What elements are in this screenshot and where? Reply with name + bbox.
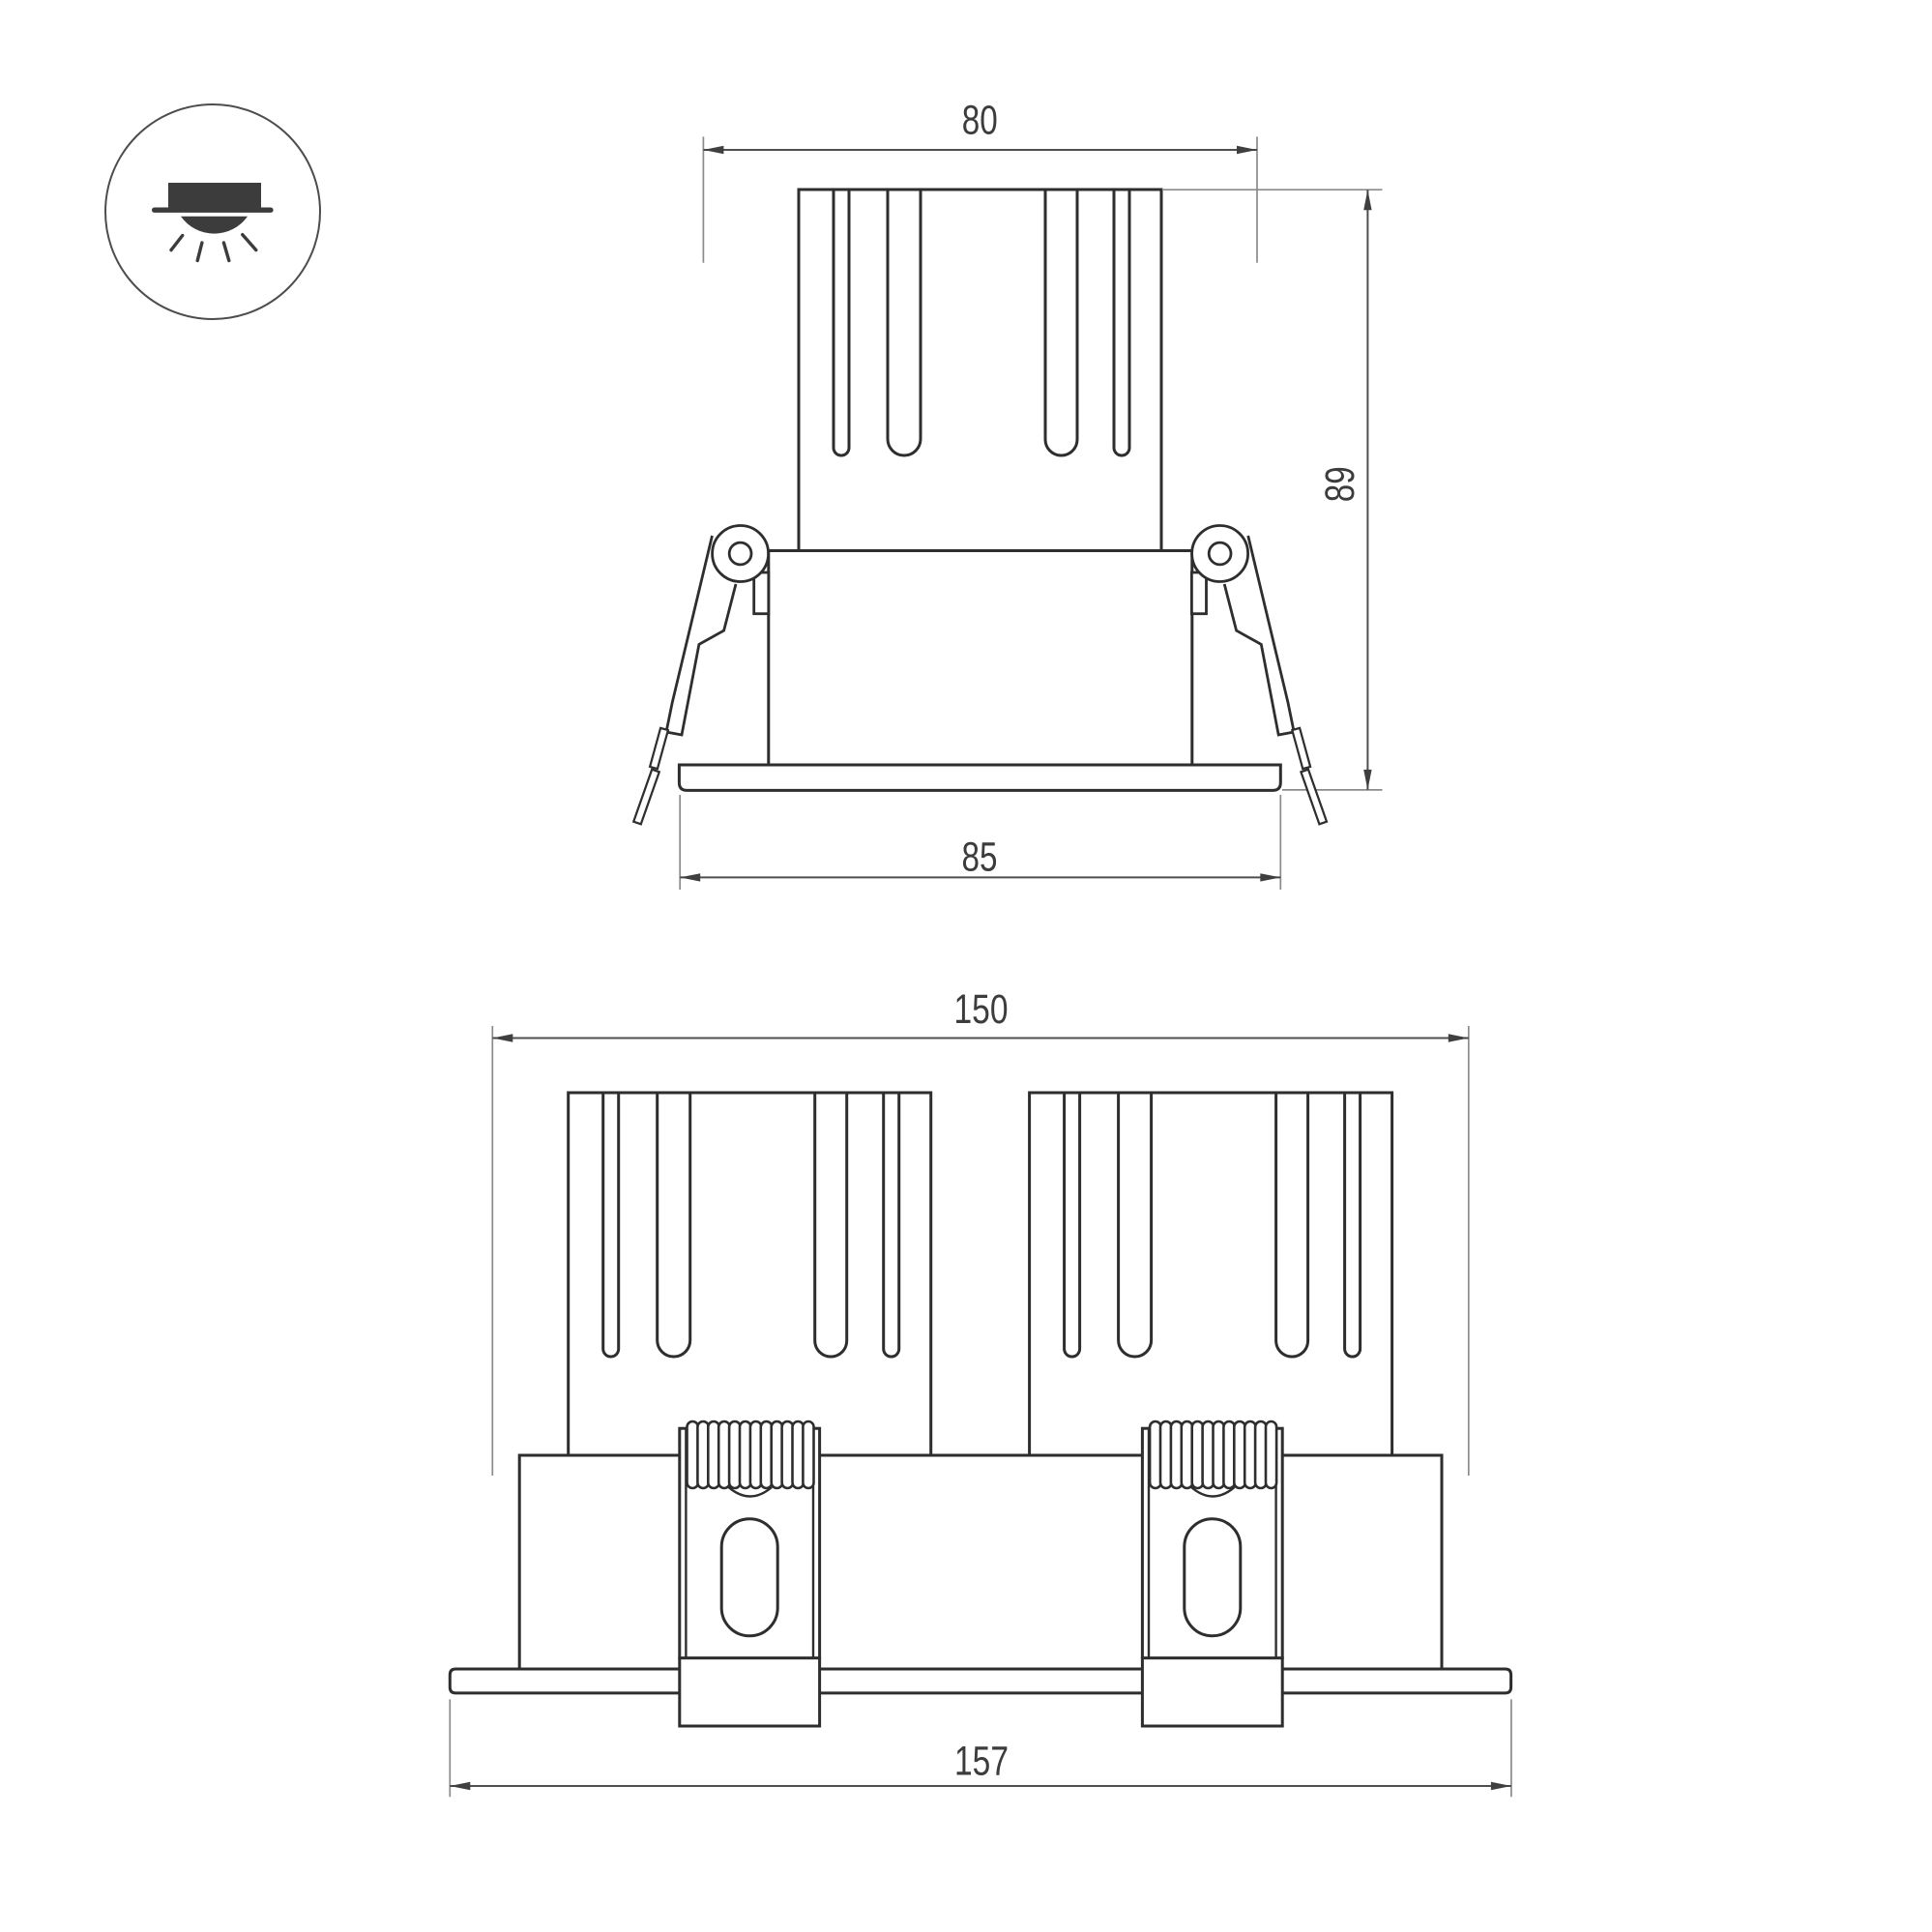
svg-text:157: 157 xyxy=(954,1739,1009,1785)
svg-text:150: 150 xyxy=(954,986,1009,1033)
svg-text:85: 85 xyxy=(962,834,998,881)
svg-text:80: 80 xyxy=(962,98,998,144)
svg-text:89: 89 xyxy=(1317,466,1363,502)
